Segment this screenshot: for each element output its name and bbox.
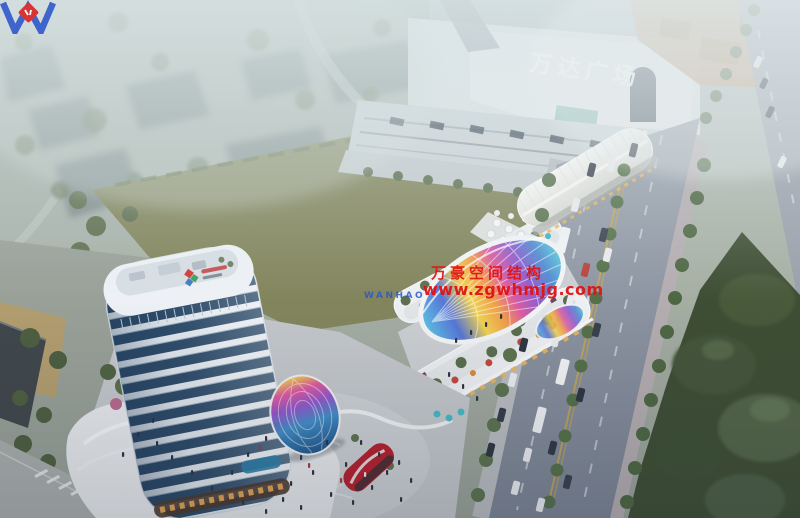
aerial-rendering: 万达广场 bbox=[0, 0, 800, 518]
scene-canvas: 万达广场 bbox=[0, 0, 800, 518]
haze-overlay bbox=[0, 0, 800, 518]
